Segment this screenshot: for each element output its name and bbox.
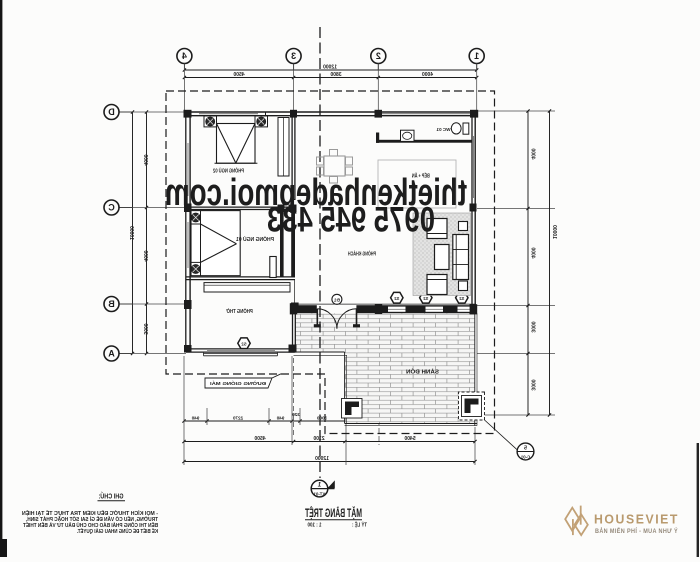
svg-text:12000: 12000 bbox=[323, 64, 337, 70]
svg-text:4000: 4000 bbox=[530, 148, 536, 159]
svg-text:10000: 10000 bbox=[128, 226, 134, 240]
svg-text:940: 940 bbox=[276, 415, 284, 420]
svg-text:1: 1 bbox=[317, 482, 321, 489]
svg-text:4000: 4000 bbox=[422, 72, 433, 78]
svg-text:C-01: C-01 bbox=[520, 454, 530, 459]
svg-text:5: 5 bbox=[524, 446, 527, 452]
svg-text:PHÒNG KHÁCH: PHÒNG KHÁCH bbox=[348, 249, 376, 257]
svg-text:1 : 100: 1 : 100 bbox=[308, 523, 322, 529]
svg-text:MẶT BẰNG TRỆT: MẶT BẰNG TRỆT bbox=[305, 507, 362, 520]
svg-text:Đ1: Đ1 bbox=[334, 297, 340, 302]
svg-text:B: B bbox=[108, 299, 115, 309]
svg-text:S2: S2 bbox=[423, 296, 429, 301]
svg-text:PHÒNG THỜ: PHÒNG THỜ bbox=[226, 307, 253, 315]
svg-text:S2: S2 bbox=[459, 296, 465, 301]
svg-text:4: 4 bbox=[182, 51, 187, 61]
svg-text:GHI CHÚ:: GHI CHÚ: bbox=[99, 492, 124, 501]
svg-text:4000: 4000 bbox=[142, 154, 148, 165]
svg-text:A: A bbox=[108, 349, 115, 359]
svg-text:BẢN MIỄN PHÍ - MUA NHƯ Ý: BẢN MIỄN PHÍ - MUA NHƯ Ý bbox=[595, 527, 678, 535]
svg-text:TRƯỜNG, NẾU CÓ VẤN ĐỀ GÌ SAI: TRƯỜNG, NẾU CÓ VẤN ĐỀ GÌ SAI SÓT HOẶC PH… bbox=[26, 515, 158, 523]
svg-text:0975 945 433: 0975 945 433 bbox=[267, 201, 435, 240]
svg-text:320: 320 bbox=[292, 412, 300, 417]
svg-text:HOUSEVIET: HOUSEVIET bbox=[594, 513, 679, 527]
svg-text:- MỌI KÍCH THƯỚC ĐỀU KIỂM TRA: - MỌI KÍCH THƯỚC ĐỀU KIỂM TRA THỰC TẾ TẠ… bbox=[22, 509, 158, 517]
svg-text:940: 940 bbox=[191, 415, 199, 420]
svg-text:S2: S2 bbox=[241, 341, 247, 346]
svg-text:2100: 2100 bbox=[313, 436, 324, 442]
svg-text:D: D bbox=[108, 107, 115, 117]
svg-text:3: 3 bbox=[291, 51, 296, 61]
svg-text:1: 1 bbox=[474, 51, 479, 61]
svg-text:BÊN THI CÔNG PHẢI BÁO CHO CHỦ: BÊN THI CÔNG PHẢI BÁO CHO CHỦ ĐẦU TƯ VÀ … bbox=[22, 521, 158, 529]
svg-text:4000: 4000 bbox=[530, 247, 536, 258]
svg-text:KT-01: KT-01 bbox=[313, 492, 326, 497]
svg-text:SẢNH ĐÓN: SẢNH ĐÓN bbox=[406, 367, 439, 375]
svg-text:C: C bbox=[108, 203, 115, 213]
svg-text:4000: 4000 bbox=[142, 250, 148, 261]
svg-text:TỶ LỆ :: TỶ LỆ : bbox=[352, 521, 367, 529]
svg-text:3000: 3000 bbox=[530, 379, 536, 390]
svg-text:12000: 12000 bbox=[315, 456, 329, 462]
svg-text:2: 2 bbox=[376, 51, 381, 61]
svg-text:5400: 5400 bbox=[404, 436, 415, 442]
svg-text:4500: 4500 bbox=[233, 72, 244, 78]
svg-text:2270: 2270 bbox=[232, 415, 243, 420]
svg-text:10000: 10000 bbox=[551, 225, 557, 239]
svg-text:3800: 3800 bbox=[330, 72, 341, 78]
svg-text:ĐƯỜNG GIÓNG MÁI: ĐƯỜNG GIÓNG MÁI bbox=[210, 379, 266, 386]
svg-text:3000: 3000 bbox=[142, 323, 148, 334]
svg-text:WC 01: WC 01 bbox=[436, 127, 450, 133]
svg-text:3000: 3000 bbox=[530, 321, 536, 332]
svg-text:S2: S2 bbox=[394, 296, 400, 301]
svg-text:KẾ BIẾT ĐỂ CÙNG NHAU GIẢI QUYẾ: KẾ BIẾT ĐỂ CÙNG NHAU GIẢI QUYẾT. bbox=[77, 528, 158, 535]
svg-text:4500: 4500 bbox=[254, 436, 265, 442]
